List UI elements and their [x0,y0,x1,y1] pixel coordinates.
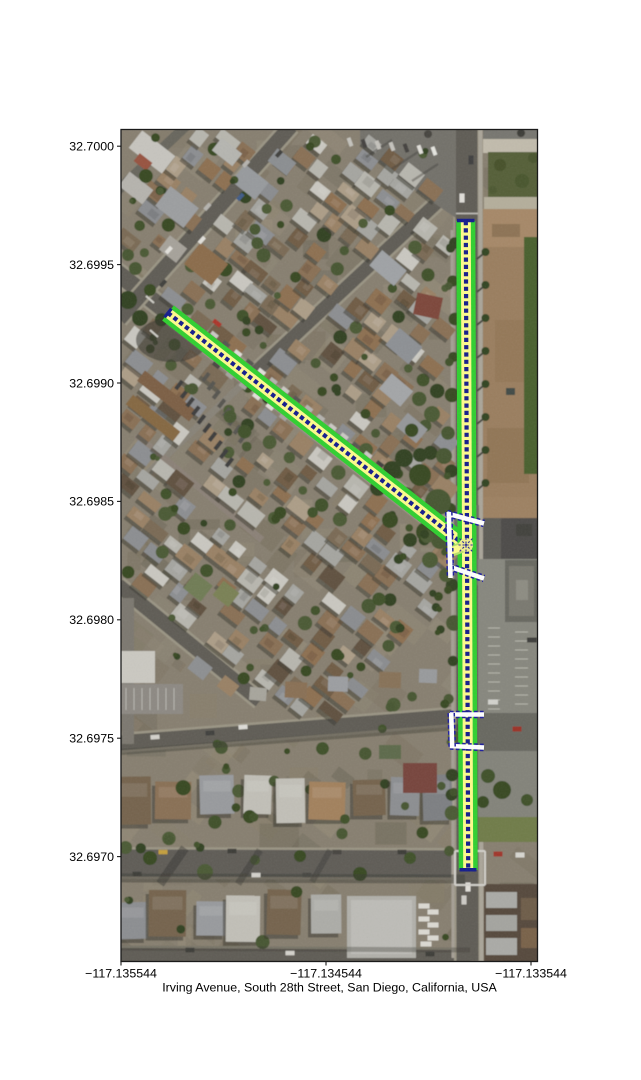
svg-text:32.6970: 32.6970 [69,850,114,864]
svg-text:−117.135544: −117.135544 [85,967,157,981]
svg-text:−117.134544: −117.134544 [290,967,362,981]
svg-text:−117.133544: −117.133544 [495,967,567,981]
svg-text:Irving Avenue, South 28th Stre: Irving Avenue, South 28th Street, San Di… [162,981,497,995]
svg-text:32.6975: 32.6975 [69,732,114,746]
svg-text:32.6980: 32.6980 [69,613,114,627]
svg-text:32.6995: 32.6995 [69,258,114,272]
svg-text:32.6990: 32.6990 [69,376,114,390]
svg-text:32.6985: 32.6985 [69,495,114,509]
svg-text:32.7000: 32.7000 [69,140,114,154]
